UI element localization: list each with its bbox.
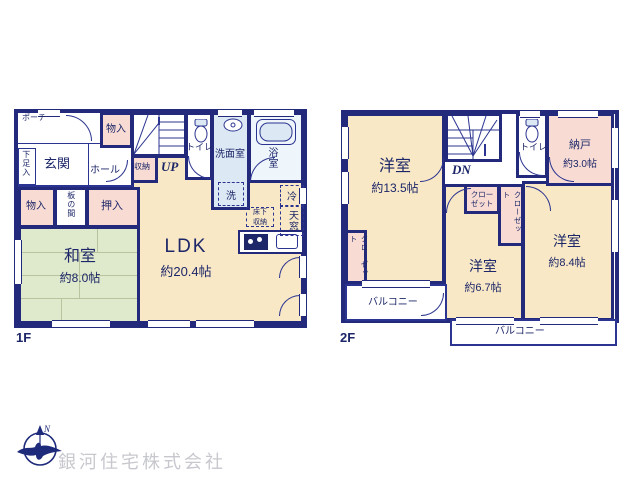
nando-name: 納戸 <box>548 136 612 152</box>
window <box>341 172 349 204</box>
yoshitsu13-name: 洋室 <box>355 152 435 176</box>
floorplan-canvas: 床下収納 冷 天窓 洗 ポーチ 玄関 下足入 ホール 物入 <box>0 0 640 480</box>
window <box>611 128 619 168</box>
stairs-2f-box <box>445 113 502 162</box>
closet-room1-label: クローゼット <box>348 235 370 279</box>
yoshitsu8-name: 洋室 <box>527 231 607 251</box>
window <box>540 317 598 325</box>
window <box>558 110 598 118</box>
window <box>456 317 514 325</box>
floor2-plan: クローゼット クローゼット クローゼット 洋室 約13.5帖 <box>0 0 640 480</box>
toilet-icon-2f <box>524 119 540 143</box>
compass-north: N <box>43 424 51 434</box>
nando-size: 約3.0帖 <box>548 155 612 170</box>
balcony-right-label: バルコニー <box>495 326 545 337</box>
company-name: 銀河住宅株式会社 <box>58 448 226 474</box>
yoshitsu6-label: 洋室 約6.7帖 <box>447 256 519 295</box>
closet-mid-b: クローゼット <box>498 184 524 246</box>
closet-room1: クローゼット <box>345 230 367 284</box>
yoshitsu13-size: 約13.5帖 <box>355 179 435 196</box>
closet-mid-a-label: クローゼット <box>469 190 495 209</box>
floor2-tag: 2F <box>340 331 355 345</box>
yoshitsu13-label: 洋室 約13.5帖 <box>355 152 435 196</box>
window <box>611 200 619 252</box>
yoshitsu8-label: 洋室 約8.4帖 <box>527 231 607 270</box>
yoshitsu6-size: 約6.7帖 <box>447 279 519 295</box>
balcony-left-label: バルコニー <box>368 297 418 308</box>
toilet-2f-label: トイレ <box>520 143 547 153</box>
window <box>520 110 540 118</box>
stairs-dn-label: DN <box>452 163 471 177</box>
window <box>341 127 349 159</box>
nando-label: 納戸 約3.0帖 <box>548 136 612 170</box>
yoshitsu8-size: 約8.4帖 <box>527 254 607 270</box>
closet-mid-b-label: クローゼット <box>501 191 523 239</box>
stairs-2f-icon <box>448 116 499 159</box>
yoshitsu6-name: 洋室 <box>447 256 519 276</box>
window <box>362 280 430 288</box>
